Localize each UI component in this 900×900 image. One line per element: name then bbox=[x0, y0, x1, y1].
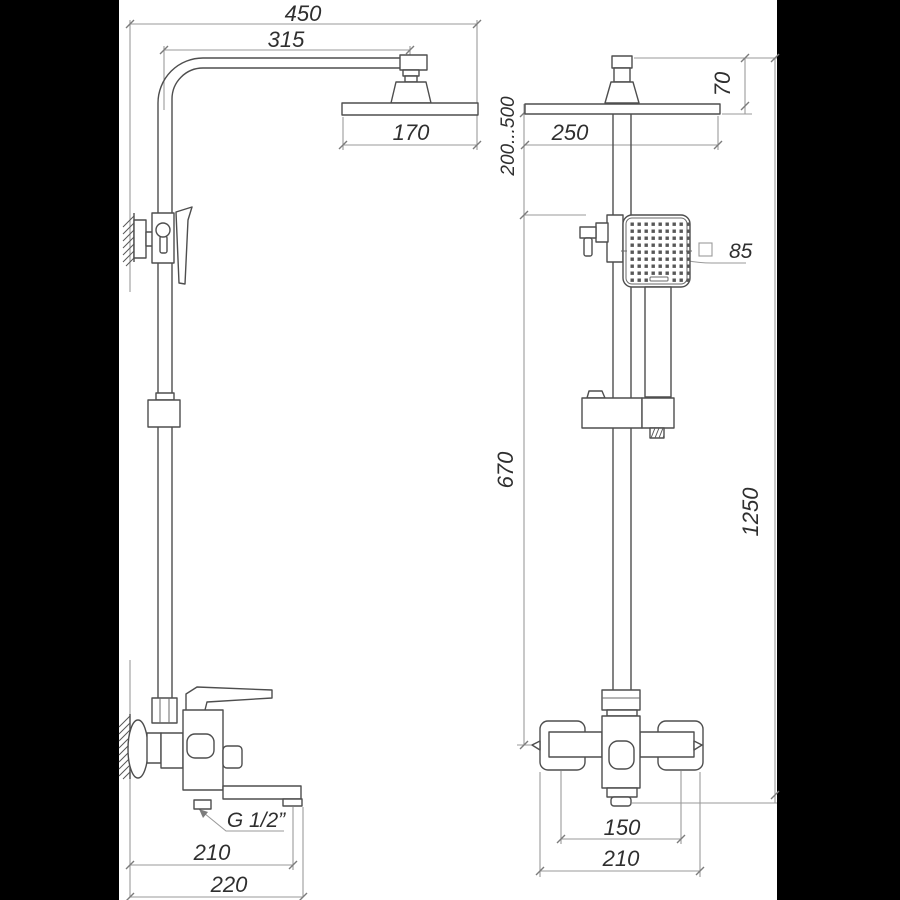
dim-height-range-label: 200...500 bbox=[498, 96, 519, 177]
dim-mixer-width-label: 210 bbox=[602, 846, 640, 871]
inlet-arm-left bbox=[549, 732, 602, 757]
head-connector-mid bbox=[614, 68, 630, 82]
head-mount-front bbox=[605, 82, 639, 103]
dim-head-height-label: 70 bbox=[710, 71, 735, 96]
handshower-nozzle-grid bbox=[631, 223, 690, 282]
ball-joint-lower bbox=[405, 76, 417, 82]
dim-thread-label: G 1/2” bbox=[227, 809, 286, 832]
bracket-slider-block bbox=[152, 213, 174, 263]
drawing-page: 450 315 170 G 1/2” 210 220 250 70 200...… bbox=[0, 0, 900, 900]
holder-block-left bbox=[582, 398, 642, 428]
diverter-knob-side bbox=[223, 746, 242, 768]
mixer-body-side bbox=[183, 710, 223, 790]
mixer-top-connector-front bbox=[602, 690, 640, 710]
dim-head-depth-label: 170 bbox=[393, 120, 430, 145]
rain-head-side bbox=[342, 103, 478, 115]
handshower-handle-front bbox=[645, 287, 671, 397]
holder-tab bbox=[587, 391, 605, 398]
slider-block-side bbox=[148, 400, 180, 427]
diverter-body bbox=[596, 223, 608, 242]
handshower-bracket-front bbox=[607, 215, 623, 262]
dim-arm-projection-label: 315 bbox=[268, 27, 305, 52]
diverter-lever bbox=[584, 238, 592, 256]
wall-escutcheon-side bbox=[128, 720, 148, 778]
keyhole-circle bbox=[156, 223, 170, 237]
dim-outlet-spacing-label: 150 bbox=[604, 815, 641, 840]
diverter-arm bbox=[580, 227, 596, 238]
mixer-inlet-side bbox=[161, 733, 183, 768]
rain-head-front bbox=[525, 104, 720, 114]
holder-block-right bbox=[642, 398, 674, 428]
mixer-neck-front bbox=[607, 710, 637, 716]
mixer-lower-step bbox=[607, 788, 637, 797]
dim-overall-width-label: 450 bbox=[285, 1, 322, 26]
arm-end-block bbox=[400, 55, 427, 70]
mixer-outlet-front bbox=[611, 797, 631, 806]
slider-collar-side bbox=[156, 393, 174, 400]
dim-spout-reach-label: 210 bbox=[193, 840, 231, 865]
ball-joint-upper bbox=[403, 70, 419, 76]
pipe-union-nut bbox=[152, 698, 177, 723]
dim-handshower-size-label: 85 bbox=[729, 240, 753, 263]
dim-overall-depth-label: 220 bbox=[210, 872, 248, 897]
head-connector-top bbox=[612, 56, 632, 68]
technical-drawing-canvas: 450 315 170 G 1/2” 210 220 250 70 200...… bbox=[0, 0, 900, 900]
dim-overall-height-label: 1250 bbox=[738, 487, 763, 537]
spout-outlet-end bbox=[283, 799, 302, 806]
inlet-arm-right bbox=[640, 732, 694, 757]
mixer-wall-connector bbox=[147, 733, 161, 763]
hose-outlet-aerator bbox=[194, 800, 211, 809]
dim-lower-column-label: 670 bbox=[493, 451, 518, 488]
bracket-wall-plate bbox=[134, 220, 146, 258]
head-mount-side bbox=[391, 82, 431, 103]
dim-head-width-label: 250 bbox=[551, 120, 589, 145]
spout-side bbox=[223, 786, 301, 799]
